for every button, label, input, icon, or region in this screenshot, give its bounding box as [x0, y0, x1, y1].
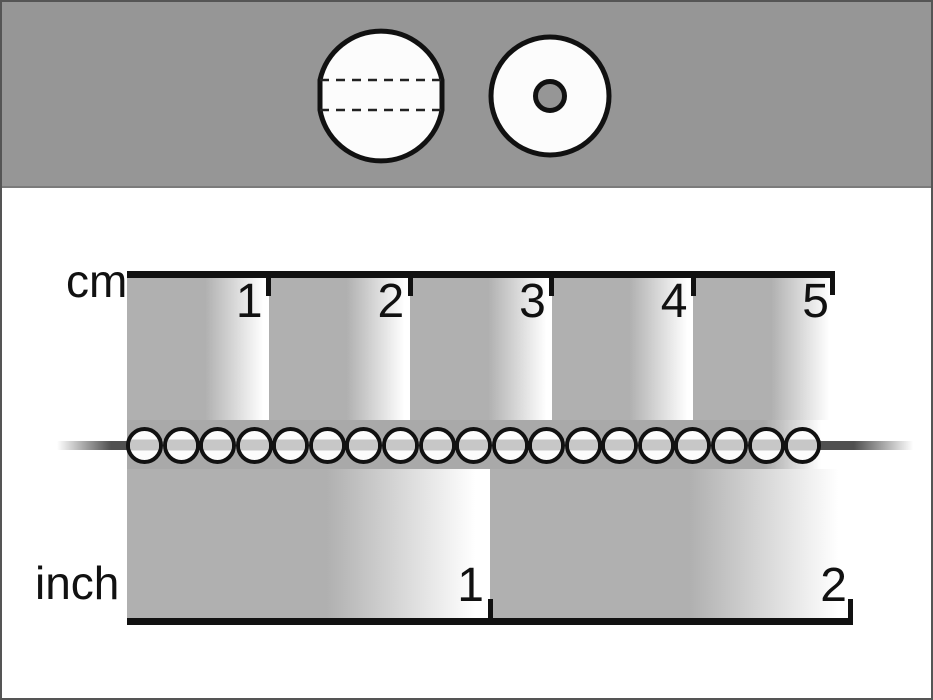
bead	[199, 427, 236, 464]
string-left-end	[57, 441, 129, 450]
bead	[492, 427, 529, 464]
bead	[674, 427, 711, 464]
bead	[419, 427, 456, 464]
cm-tick	[408, 275, 413, 296]
bead	[528, 427, 565, 464]
bead-hole-stripe	[272, 440, 309, 451]
string-right-end	[820, 441, 917, 450]
bead-hole-stripe	[528, 440, 565, 451]
cm-tick	[266, 275, 271, 296]
bead	[236, 427, 273, 464]
cm-tick-label: 3	[466, 278, 546, 326]
bead-hole-stripe	[126, 440, 163, 451]
cm-tick-label: 2	[324, 278, 404, 326]
bead-hole-stripe	[309, 440, 346, 451]
bead-hole-stripe	[163, 440, 200, 451]
bead-hole-stripe	[492, 440, 529, 451]
cm-tick	[549, 275, 554, 296]
bead	[382, 427, 419, 464]
cm-tick-label: 5	[749, 278, 829, 326]
bead	[638, 427, 675, 464]
bead-hole-stripe	[638, 440, 675, 451]
inch-ruler-end-tick	[848, 599, 853, 625]
bead-strand	[126, 426, 823, 464]
bead	[565, 427, 602, 464]
bead	[601, 427, 638, 464]
bead-hole-stripe	[199, 440, 236, 451]
bead-hole-stripe	[455, 440, 492, 451]
bead	[309, 427, 346, 464]
bead	[784, 427, 821, 464]
cm-tick-label: 1	[183, 278, 263, 326]
bead	[455, 427, 492, 464]
inch-tick-label: 1	[404, 562, 484, 610]
bead-hole-stripe	[565, 440, 602, 451]
bead	[748, 427, 785, 464]
bead-product-image: cm inch 1234512	[0, 0, 933, 700]
bead-hole-stripe	[345, 440, 382, 451]
bead	[711, 427, 748, 464]
ruler-graphic: 1234512	[2, 2, 931, 698]
cm-tick	[691, 275, 696, 296]
bead-hole-stripe	[382, 440, 419, 451]
bead	[272, 427, 309, 464]
inch-ruler-line	[127, 618, 853, 625]
bead-hole-stripe	[748, 440, 785, 451]
cm-tick-label: 4	[607, 278, 687, 326]
cm-ruler-line	[127, 271, 835, 278]
inch-tick-label: 2	[767, 562, 847, 610]
bead-hole-stripe	[784, 440, 821, 451]
bead-hole-stripe	[711, 440, 748, 451]
bead-hole-stripe	[236, 440, 273, 451]
cm-ruler-end-tick	[830, 271, 835, 295]
bead	[163, 427, 200, 464]
bead-hole-stripe	[601, 440, 638, 451]
bead-hole-stripe	[419, 440, 456, 451]
bead-hole-stripe	[674, 440, 711, 451]
bead	[345, 427, 382, 464]
bead	[126, 427, 163, 464]
inch-tick	[488, 599, 493, 619]
